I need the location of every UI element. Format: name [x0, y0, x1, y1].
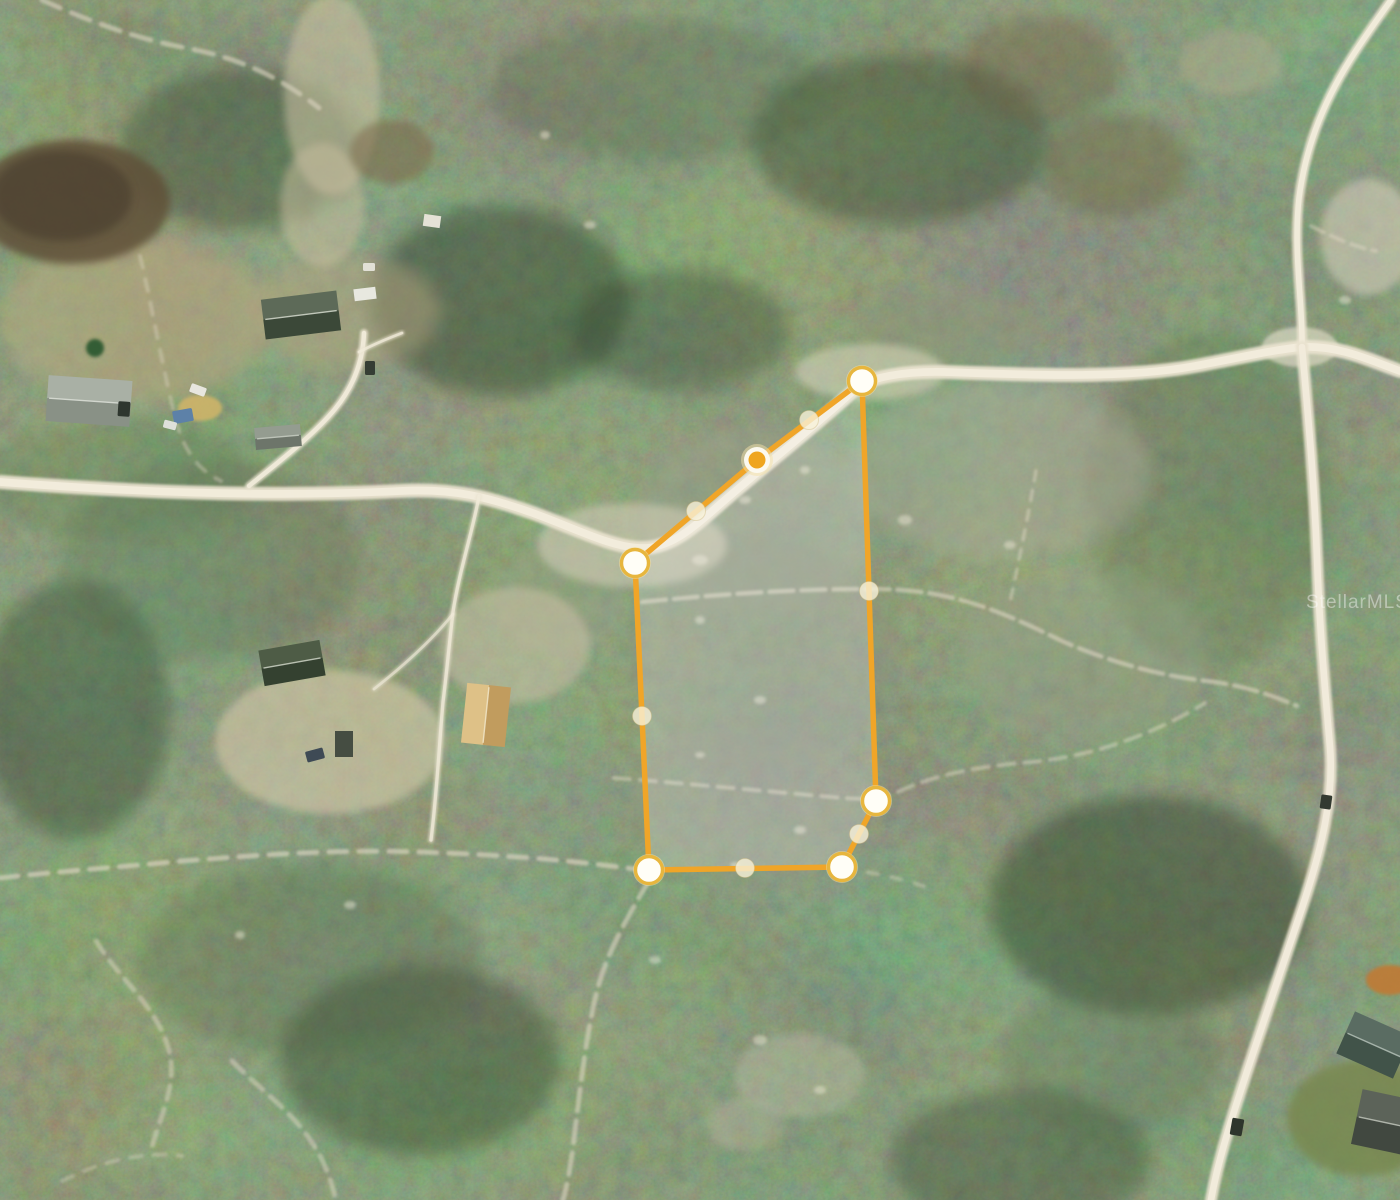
midpoint-handle[interactable]	[633, 707, 652, 726]
map-object	[363, 263, 375, 271]
terrain-patch	[1178, 30, 1282, 94]
sand-speckle	[584, 221, 596, 229]
terrain-patch	[570, 270, 790, 390]
sand-speckle	[814, 1086, 826, 1094]
map-object	[365, 361, 375, 375]
terrain-patch	[490, 20, 830, 160]
terrain-patch	[140, 865, 480, 1055]
vertex-handle[interactable]	[633, 854, 665, 886]
terrain-patch	[280, 143, 364, 267]
terrain-patch	[440, 587, 590, 703]
vertex-dot	[849, 368, 876, 395]
midpoint-handle[interactable]	[860, 582, 879, 601]
vertex-handle[interactable]	[846, 365, 878, 397]
terrain-patch	[960, 15, 1120, 125]
vertex-dot	[749, 452, 766, 469]
vertex-dot	[636, 857, 663, 884]
satellite-map: StellarMLS.	[0, 0, 1400, 1200]
midpoint-handle[interactable]	[687, 502, 706, 521]
vertex-handle[interactable]	[619, 547, 651, 579]
building	[461, 683, 511, 747]
terrain-patch	[350, 120, 434, 184]
sand-speckle	[649, 956, 661, 964]
terrain-patch	[990, 795, 1310, 1015]
building-roof	[423, 214, 442, 228]
terrain-patch	[850, 380, 1150, 560]
vertex-dot	[622, 550, 649, 577]
map-object	[117, 401, 130, 417]
sand-speckle	[1004, 541, 1016, 549]
vertex-handle[interactable]	[860, 785, 892, 817]
sand-speckle	[540, 131, 550, 139]
vertex-dot	[829, 854, 856, 881]
midpoint-handle[interactable]	[800, 411, 819, 430]
map-object	[1320, 794, 1333, 809]
terrain-patch	[960, 570, 1210, 740]
vertex-handle[interactable]	[826, 851, 858, 883]
building-roof	[335, 731, 353, 757]
midpoint-handle[interactable]	[736, 859, 755, 878]
building	[45, 375, 132, 427]
midpoint-handle[interactable]	[850, 825, 869, 844]
building	[423, 214, 442, 228]
sand-speckle	[235, 931, 245, 939]
terrain-patch	[0, 238, 270, 402]
terrain-patch	[1040, 113, 1190, 217]
sand-speckle	[898, 515, 912, 525]
terrain-patch	[705, 1099, 785, 1151]
watermark: StellarMLS.	[1306, 592, 1400, 613]
sand-speckle	[344, 901, 356, 909]
terrain-patch	[215, 670, 445, 814]
building	[335, 731, 353, 757]
terrain-patch	[1000, 985, 1220, 1135]
vertex-dot	[863, 788, 890, 815]
sand-speckle	[1339, 296, 1351, 304]
sand-speckle	[753, 1035, 767, 1045]
selected-vertex-handle[interactable]	[741, 444, 773, 476]
mls-listing-photo: StellarMLS.	[0, 0, 1400, 1200]
terrain-patch	[86, 339, 104, 357]
building	[254, 424, 302, 450]
